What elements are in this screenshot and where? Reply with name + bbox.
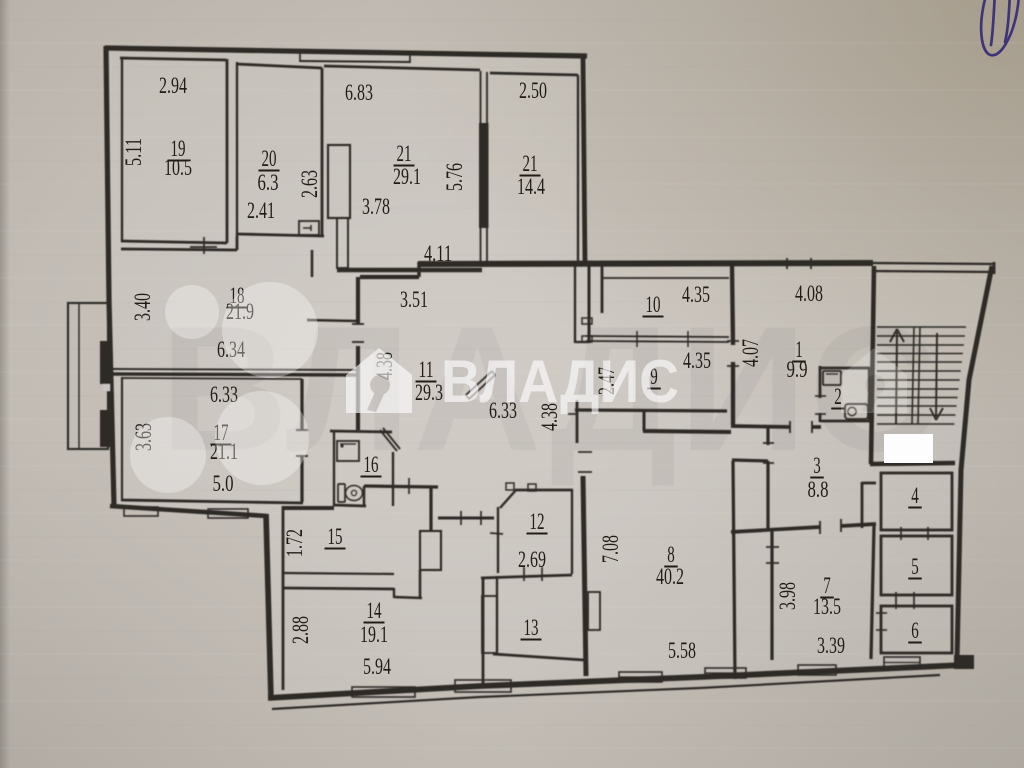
svg-text:6: 6 <box>911 618 919 644</box>
svg-text:2.41: 2.41 <box>247 198 275 224</box>
svg-text:4.35: 4.35 <box>683 348 711 374</box>
svg-text:29.3: 29.3 <box>415 380 443 406</box>
svg-text:5.76: 5.76 <box>442 163 468 191</box>
svg-text:6.83: 6.83 <box>345 80 373 106</box>
svg-text:16: 16 <box>364 452 379 478</box>
svg-text:2.88: 2.88 <box>288 616 314 644</box>
svg-text:ВЛАДИС: ВЛАДИС <box>441 348 679 415</box>
svg-text:4: 4 <box>911 483 919 509</box>
svg-text:5.94: 5.94 <box>363 654 391 680</box>
svg-text:40.2: 40.2 <box>656 564 684 590</box>
svg-text:29.1: 29.1 <box>393 164 421 190</box>
svg-text:5.58: 5.58 <box>668 638 696 664</box>
svg-text:3.39: 3.39 <box>817 633 845 659</box>
svg-text:10: 10 <box>646 292 661 318</box>
svg-text:20: 20 <box>262 146 277 172</box>
svg-text:2: 2 <box>834 384 842 410</box>
svg-text:10.5: 10.5 <box>164 155 192 181</box>
svg-text:13.5: 13.5 <box>813 594 841 620</box>
svg-text:19.1: 19.1 <box>360 622 388 648</box>
svg-text:2.94: 2.94 <box>159 73 187 99</box>
svg-text:12: 12 <box>530 509 545 535</box>
svg-text:3.78: 3.78 <box>362 194 390 220</box>
svg-text:4.35: 4.35 <box>682 282 710 308</box>
svg-text:3.98: 3.98 <box>775 582 801 610</box>
svg-text:2.69: 2.69 <box>518 547 546 573</box>
svg-text:2.50: 2.50 <box>519 78 547 104</box>
svg-text:1.72: 1.72 <box>282 529 308 557</box>
svg-text:15: 15 <box>328 524 343 550</box>
svg-text:5.0: 5.0 <box>213 471 234 497</box>
svg-text:5: 5 <box>911 554 919 580</box>
svg-text:4.11: 4.11 <box>424 241 452 267</box>
svg-text:14.4: 14.4 <box>517 174 545 200</box>
svg-text:9.9: 9.9 <box>787 357 808 383</box>
svg-text:4.08: 4.08 <box>795 281 823 307</box>
svg-text:3: 3 <box>813 453 821 479</box>
svg-text:3.40: 3.40 <box>130 293 156 321</box>
svg-text:5.11: 5.11 <box>121 138 147 166</box>
svg-text:2.63: 2.63 <box>297 170 323 198</box>
svg-text:7.08: 7.08 <box>598 535 624 563</box>
svg-text:8.8: 8.8 <box>808 477 829 503</box>
svg-text:6.3: 6.3 <box>258 170 279 196</box>
svg-text:14: 14 <box>367 598 382 624</box>
svg-text:13: 13 <box>524 615 539 641</box>
svg-text:4.07: 4.07 <box>738 339 764 367</box>
svg-text:3.51: 3.51 <box>400 287 428 313</box>
